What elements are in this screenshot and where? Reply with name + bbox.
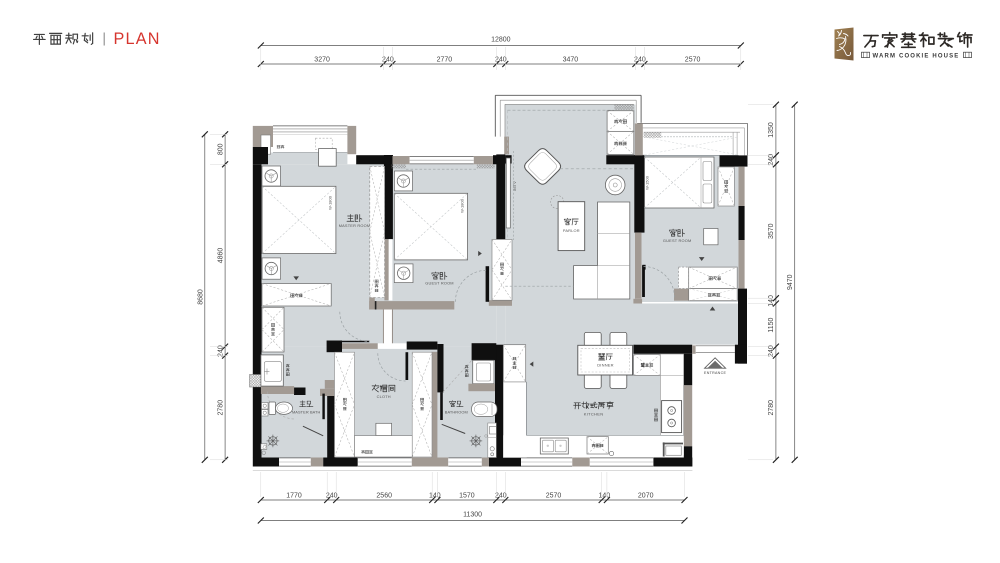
svg-text:2570: 2570 <box>546 493 562 500</box>
svg-text:240: 240 <box>634 57 646 64</box>
svg-text:2570: 2570 <box>685 57 701 64</box>
svg-text:140: 140 <box>429 493 441 500</box>
svg-text:240: 240 <box>495 57 507 64</box>
svg-text:85TV: 85TV <box>512 181 517 191</box>
svg-text:1350: 1350 <box>768 122 775 138</box>
svg-text:11300: 11300 <box>463 512 482 519</box>
svg-text:240: 240 <box>326 493 338 500</box>
svg-text:PLAN: PLAN <box>114 30 161 48</box>
svg-text:3470: 3470 <box>563 57 579 64</box>
svg-text:W-1800: W-1800 <box>327 195 332 210</box>
svg-text:GUEST ROOM: GUEST ROOM <box>663 238 692 243</box>
svg-text:240: 240 <box>217 345 224 357</box>
svg-text:4860: 4860 <box>217 248 224 264</box>
svg-text:2780: 2780 <box>768 400 775 416</box>
svg-text:240: 240 <box>382 57 394 64</box>
svg-text:240: 240 <box>495 493 507 500</box>
svg-text:PARLOR: PARLOR <box>563 228 580 233</box>
svg-text:KITCHEN: KITCHEN <box>584 412 604 417</box>
svg-text:8680: 8680 <box>197 289 204 305</box>
svg-text:140: 140 <box>598 493 610 500</box>
svg-text:2070: 2070 <box>638 493 654 500</box>
svg-text:240: 240 <box>768 154 775 166</box>
svg-text:BATHROOM: BATHROOM <box>445 410 468 415</box>
svg-text:MASTER ROOM: MASTER ROOM <box>339 223 371 228</box>
svg-text:CLOTH: CLOTH <box>377 394 391 399</box>
svg-text:2770: 2770 <box>437 57 453 64</box>
svg-text:140: 140 <box>768 295 775 307</box>
svg-text:GUEST ROOM: GUEST ROOM <box>425 281 454 286</box>
svg-text:1150: 1150 <box>768 317 775 332</box>
svg-text:2780: 2780 <box>217 400 224 416</box>
svg-text:1770: 1770 <box>286 493 302 500</box>
svg-text:W-1500: W-1500 <box>645 175 650 190</box>
svg-text:3270: 3270 <box>314 57 330 64</box>
svg-text:W-1800: W-1800 <box>460 198 465 213</box>
svg-text:9470: 9470 <box>787 274 794 290</box>
svg-text:1570: 1570 <box>459 493 475 500</box>
svg-text:2560: 2560 <box>376 493 392 500</box>
svg-text:MASTER BATH: MASTER BATH <box>292 410 321 415</box>
svg-text:ENTRANCE: ENTRANCE <box>704 371 726 375</box>
svg-text:DINNER: DINNER <box>597 363 614 368</box>
svg-text:WARM COOKIE HOUSE: WARM COOKIE HOUSE <box>873 53 960 59</box>
svg-text:800: 800 <box>217 143 224 155</box>
svg-text:3570: 3570 <box>768 223 775 239</box>
svg-text:240: 240 <box>768 345 775 357</box>
svg-text:12800: 12800 <box>491 37 511 44</box>
